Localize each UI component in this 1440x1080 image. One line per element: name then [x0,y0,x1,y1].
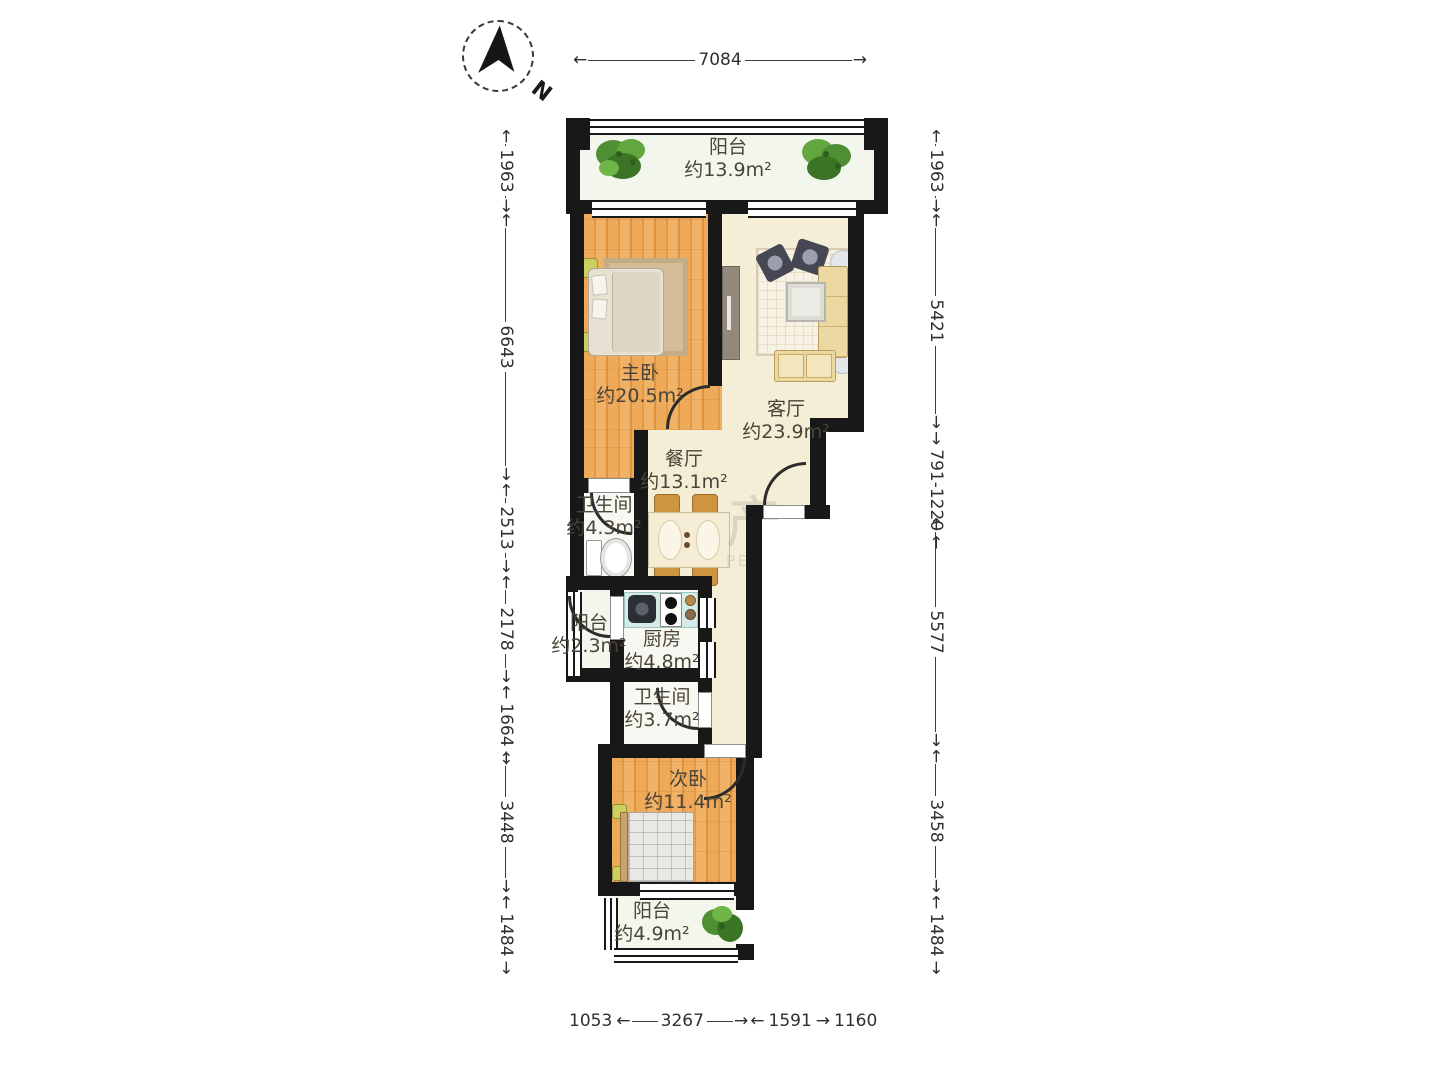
label-dining-room: 餐厅 约13.1m² [640,448,727,494]
wall [848,214,864,432]
label-master-bedroom: 主卧 约20.5m² [596,362,683,408]
room-name: 主卧 [596,362,683,385]
compass: N [458,16,538,96]
place-setting [658,520,682,560]
dim-left-5: 1664 [496,684,516,750]
tv-screen [727,296,731,330]
wall [698,628,712,642]
balcony-railing [614,948,738,963]
burner [665,613,677,625]
dim-value: 7084 [695,50,744,70]
room-area: 约4.9m² [614,923,689,946]
room-name: 阳台 [551,612,626,635]
dim-bottom: 1053 3267 1591 1160 [566,1010,876,1032]
wall [598,744,612,896]
dim-right-5: 3458 [926,748,946,894]
pillow [591,274,608,295]
wall [736,944,754,960]
label-kitchen: 厨房 约4.8m² [624,628,699,674]
seat-cushion [778,354,804,378]
room-name: 卫生间 [624,686,699,709]
counter-item [685,595,696,606]
label-second-bedroom: 次卧 约11.4m² [644,768,731,814]
room-area: 约3.7m² [624,709,699,732]
dim-right-6: 1484 [926,894,946,962]
dim-right-4: 5577 [926,516,946,748]
table-decor [684,532,690,538]
floor-master-doorway [708,386,722,430]
plant-icon [592,132,654,188]
wall [864,118,888,150]
room-area: 约13.9m² [684,159,771,182]
dim-right-3: 791-1220 [926,430,946,516]
dim-value: 1053 [566,1011,615,1031]
dim-right-1: 1963 [926,128,946,212]
door-sill-bathroom-second [698,692,712,728]
window [698,642,716,678]
dim-value: 1160 [831,1011,880,1031]
blanket [612,272,660,352]
window [698,598,716,628]
wall [610,682,624,744]
door-sill-bathroom-main [588,478,630,493]
room-area: 约11.4m² [644,791,731,814]
kitchen-sink [628,595,656,623]
table-decor [684,542,690,548]
room-name: 客厅 [742,398,829,421]
coffee-table [786,282,826,322]
window [748,200,856,218]
label-living-room: 客厅 约23.9m² [742,398,829,444]
seat-cushion [806,354,832,378]
door-sill-second-bedroom [704,744,746,758]
place-setting [696,520,720,560]
arrow-left-icon [572,50,588,70]
arrow-right-icon [852,50,868,70]
wall [698,590,712,598]
label-bathroom-main: 卫生间 约4.3m² [566,494,641,540]
room-name: 次卧 [644,768,731,791]
dim-top: 7084 [572,50,868,70]
balcony-railing [590,119,864,135]
wall [736,896,754,910]
dim-left-4: 2178 [496,574,516,684]
pillow [591,298,608,319]
dim-left-2: 6643 [496,212,516,482]
room-area: 约20.5m² [596,385,683,408]
door-sill-entrance [763,505,805,519]
plant-icon [795,132,857,188]
floor-master-notch [584,430,634,478]
dining-chair [692,494,718,514]
label-balcony-bottom: 阳台 约4.9m² [614,900,689,946]
room-area: 约2.3m² [551,635,626,658]
wall [566,118,590,150]
dim-left-6: 3448 [496,750,516,894]
tv-cabinet [722,266,740,360]
wall [698,682,712,692]
dim-left-1: 1963 [496,128,516,212]
dim-left-3: 2513 [496,482,516,574]
dim-left-7: 1484 [496,894,516,962]
window [640,882,734,900]
counter-item [685,609,696,620]
floor-plan: N [0,0,1440,1080]
wall [566,576,712,590]
wall [708,214,722,386]
room-name: 厨房 [624,628,699,651]
wall [746,518,762,748]
dim-value: 1591 [766,1011,815,1031]
dining-chair [654,494,680,514]
room-area: 约13.1m² [640,471,727,494]
room-name: 餐厅 [640,448,727,471]
label-balcony-top: 阳台 约13.9m² [684,136,771,182]
toilet-bowl [600,538,632,578]
window [592,200,706,218]
label-bathroom-second: 卫生间 约3.7m² [624,686,699,732]
room-area: 约4.8m² [624,651,699,674]
dim-value: 3267 [658,1011,707,1031]
label-balcony-side: 阳台 约2.3m² [551,612,626,658]
compass-ring-icon [462,20,534,92]
room-name: 阳台 [684,136,771,159]
headboard [620,812,628,882]
burner [665,597,677,609]
wall [698,728,712,744]
second-bed [628,812,694,882]
dim-right-2: 5421 [926,212,946,430]
wall [612,744,704,758]
room-name: 卫生间 [566,494,641,517]
room-area: 约4.3m² [566,517,641,540]
room-name: 阳台 [614,900,689,923]
room-area: 约23.9m² [742,421,829,444]
